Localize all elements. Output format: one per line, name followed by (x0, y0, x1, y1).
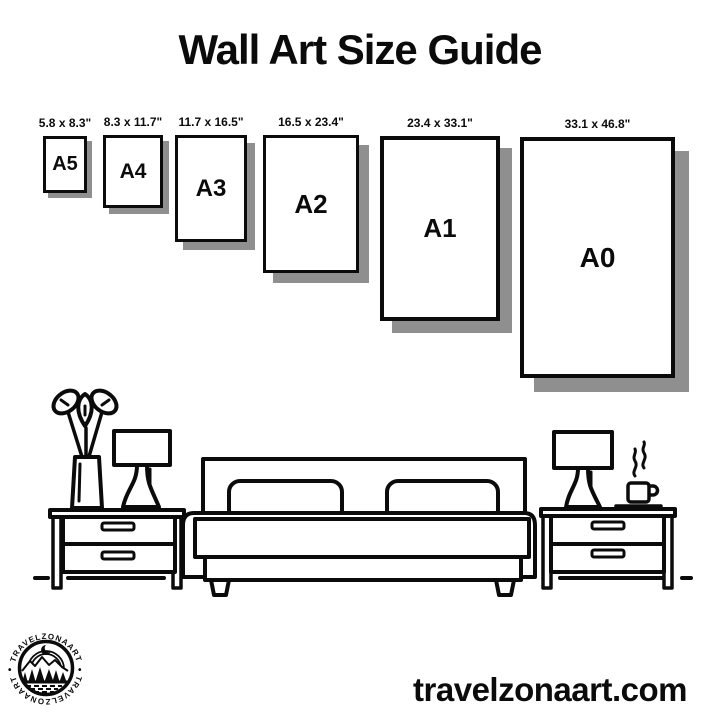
bed-icon (183, 459, 535, 595)
cup-body (628, 483, 649, 502)
size-frame-a2: 16.5 x 23.4" A2 (263, 135, 359, 273)
logo-dot-right: • (78, 665, 82, 676)
size-label-a1: 23.4 x 33.1" (407, 116, 473, 130)
paper-a2: A2 (263, 135, 359, 273)
size-label-a0: 33.1 x 46.8" (565, 117, 631, 131)
paper-a0: A0 (520, 137, 675, 378)
lamp-left-icon (114, 431, 170, 507)
size-frame-a5: 5.8 x 8.3" A5 (43, 136, 87, 193)
size-label-a2: 16.5 x 23.4" (278, 115, 344, 129)
drawer-handle (592, 522, 624, 529)
lamp-right-shade (554, 432, 612, 468)
drawer-handle (102, 552, 134, 559)
lamp-right-icon (554, 432, 612, 507)
mattress (195, 519, 529, 557)
steam-icon (634, 442, 645, 476)
page-title: Wall Art Size Guide (0, 26, 720, 74)
size-frame-a3: 11.7 x 16.5" A3 (175, 135, 247, 242)
plant-icon (49, 386, 121, 508)
bedroom-illustration (0, 380, 720, 605)
size-frame-a0: 33.1 x 46.8" A0 (520, 137, 675, 378)
vase (72, 457, 102, 508)
paper-a5: A5 (43, 136, 87, 193)
website-url: travelzonaart.com (400, 671, 700, 709)
coffee-cup-icon (616, 442, 661, 506)
paper-name-a0: A0 (580, 242, 616, 274)
bed-base (205, 557, 521, 580)
paper-name-a3: A3 (196, 175, 227, 203)
paper-a3: A3 (175, 135, 247, 242)
nightstand-left-leg-a (53, 517, 61, 588)
logo-dot-left: • (8, 665, 12, 676)
drawer-handle (102, 523, 134, 530)
drawer-handle (592, 550, 624, 557)
paper-name-a2: A2 (294, 189, 327, 220)
brand-logo: TRAVELZONAART TRAVELZONAART • • (2, 624, 90, 712)
paper-a4: A4 (103, 135, 163, 208)
size-label-a3: 11.7 x 16.5" (178, 115, 243, 129)
lamp-left-shade (114, 431, 170, 465)
bed-leg-right (496, 580, 514, 595)
paper-name-a1: A1 (423, 213, 456, 244)
size-frame-a1: 23.4 x 33.1" A1 (380, 136, 500, 321)
size-label-a4: 8.3 x 11.7" (104, 115, 162, 129)
lamp-right-base (566, 468, 600, 507)
paper-name-a5: A5 (52, 153, 78, 176)
size-label-a5: 5.8 x 8.3" (39, 116, 91, 130)
bed-leg-left (211, 580, 229, 595)
size-frame-a4: 8.3 x 11.7" A4 (103, 135, 163, 208)
vase-inner-line (79, 464, 80, 501)
lamp-left-base (123, 465, 159, 507)
paper-a1: A1 (380, 136, 500, 321)
paper-name-a4: A4 (120, 160, 147, 184)
